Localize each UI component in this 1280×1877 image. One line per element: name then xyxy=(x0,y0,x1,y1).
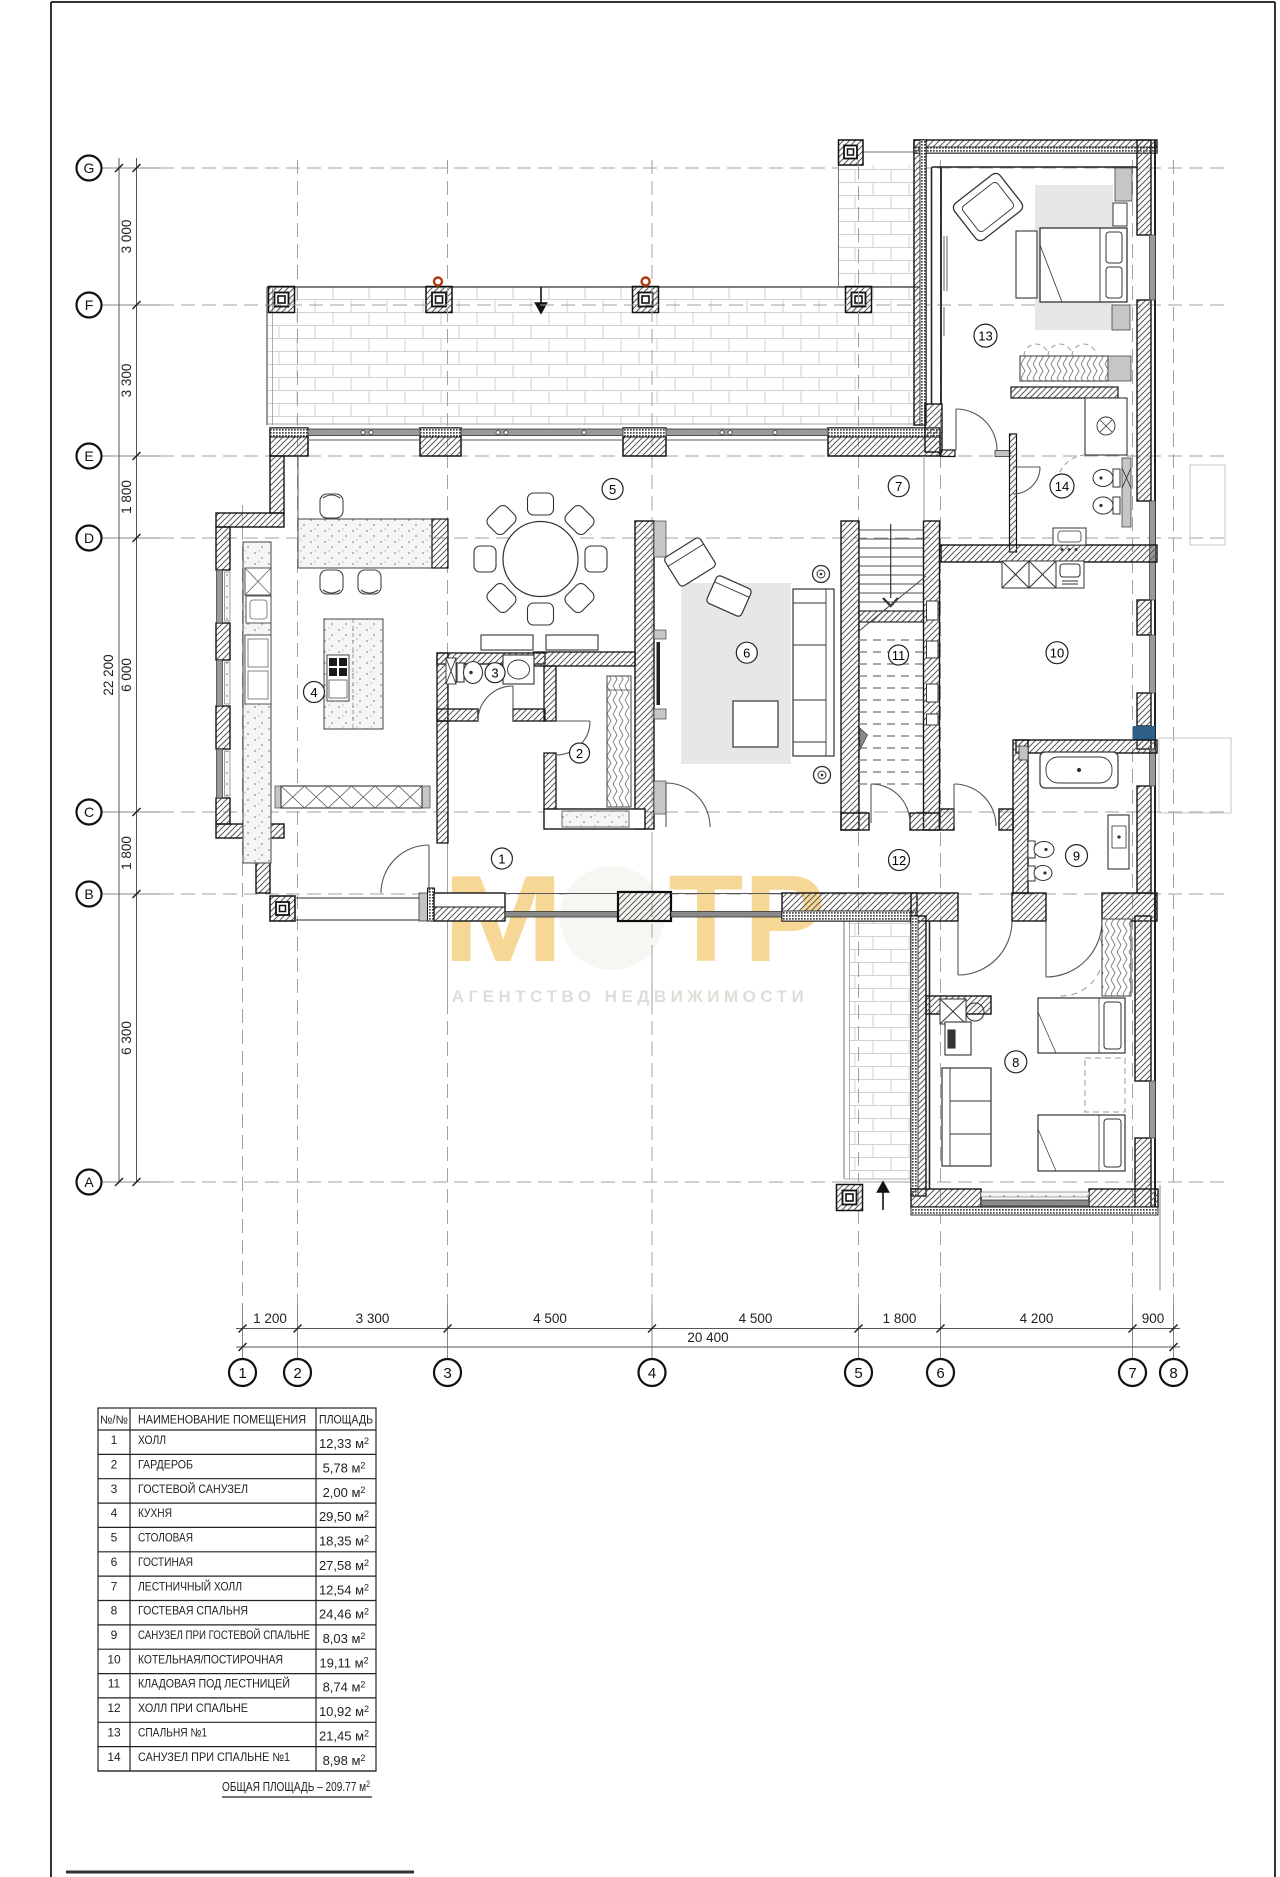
svg-text:4: 4 xyxy=(310,685,317,700)
svg-text:11: 11 xyxy=(108,1677,121,1691)
svg-text:E: E xyxy=(84,448,93,464)
svg-text:2: 2 xyxy=(576,746,583,761)
svg-text:29,50 м2: 29,50 м2 xyxy=(319,1509,369,1524)
svg-text:9: 9 xyxy=(1073,849,1080,864)
svg-text:8,74 м2: 8,74 м2 xyxy=(323,1680,366,1695)
svg-text:12: 12 xyxy=(892,853,906,868)
svg-text:КОТЕЛЬНАЯ/ПОСТИРОЧНАЯ: КОТЕЛЬНАЯ/ПОСТИРОЧНАЯ xyxy=(138,1652,283,1666)
svg-text:8,03 м2: 8,03 м2 xyxy=(323,1631,366,1646)
svg-text:3 000: 3 000 xyxy=(119,220,134,254)
svg-text:18,35 м2: 18,35 м2 xyxy=(319,1534,369,1549)
svg-text:7: 7 xyxy=(111,1579,118,1593)
svg-text:13: 13 xyxy=(107,1726,121,1740)
svg-text:№/№: №/№ xyxy=(100,1415,128,1427)
svg-text:D: D xyxy=(84,530,94,546)
svg-text:900: 900 xyxy=(1142,1311,1165,1326)
svg-text:F: F xyxy=(85,297,94,313)
svg-text:3 300: 3 300 xyxy=(119,364,134,398)
svg-text:ГАРДЕРОБ: ГАРДЕРОБ xyxy=(138,1458,193,1472)
svg-text:2: 2 xyxy=(293,1365,301,1382)
svg-text:B: B xyxy=(84,886,93,902)
svg-text:C: C xyxy=(84,804,94,820)
svg-text:5: 5 xyxy=(854,1365,862,1382)
svg-text:2: 2 xyxy=(111,1458,118,1472)
svg-text:2,00 м2: 2,00 м2 xyxy=(323,1485,366,1500)
svg-text:ЛЕСТНИЧНЫЙ ХОЛЛ: ЛЕСТНИЧНЫЙ ХОЛЛ xyxy=(138,1578,242,1593)
svg-text:8: 8 xyxy=(1169,1365,1177,1382)
svg-text:27,58 м2: 27,58 м2 xyxy=(319,1558,369,1573)
svg-text:8,98 м2: 8,98 м2 xyxy=(323,1753,366,1768)
svg-text:21,45 м2: 21,45 м2 xyxy=(319,1729,369,1744)
svg-text:5: 5 xyxy=(111,1531,118,1545)
svg-text:САНУЗЕЛ ПРИ СПАЛЬНЕ №1: САНУЗЕЛ ПРИ СПАЛЬНЕ №1 xyxy=(138,1750,290,1764)
svg-text:6: 6 xyxy=(743,646,750,661)
svg-text:4 500: 4 500 xyxy=(739,1311,773,1326)
svg-text:7: 7 xyxy=(895,479,902,494)
svg-text:1: 1 xyxy=(238,1365,246,1382)
svg-text:5: 5 xyxy=(609,482,616,497)
svg-text:13: 13 xyxy=(978,329,992,344)
svg-text:САНУЗЕЛ ПРИ ГОСТЕВОЙ СПАЛЬНЕ: САНУЗЕЛ ПРИ ГОСТЕВОЙ СПАЛЬНЕ xyxy=(138,1627,310,1642)
svg-text:1 200: 1 200 xyxy=(253,1311,287,1326)
svg-text:1 800: 1 800 xyxy=(119,836,134,870)
svg-text:ОБЩАЯ ПЛОЩАДЬ – 209.77 м2: ОБЩАЯ ПЛОЩАДЬ – 209.77 м2 xyxy=(222,1779,370,1794)
svg-text:ХОЛЛ ПРИ СПАЛЬНЕ: ХОЛЛ ПРИ СПАЛЬНЕ xyxy=(138,1701,248,1715)
svg-text:3: 3 xyxy=(491,666,498,681)
svg-text:22 200: 22 200 xyxy=(101,654,116,695)
svg-text:ХОЛЛ: ХОЛЛ xyxy=(138,1433,166,1447)
svg-text:6 000: 6 000 xyxy=(119,658,134,692)
svg-text:4: 4 xyxy=(648,1365,656,1382)
svg-text:24,46 м2: 24,46 м2 xyxy=(319,1607,369,1622)
svg-text:1 800: 1 800 xyxy=(119,480,134,514)
svg-text:6 300: 6 300 xyxy=(119,1021,134,1055)
svg-text:10: 10 xyxy=(1050,646,1064,661)
svg-text:СПАЛЬНЯ №1: СПАЛЬНЯ №1 xyxy=(138,1726,207,1740)
svg-text:12,33 м2: 12,33 м2 xyxy=(319,1436,369,1451)
svg-text:АГЕНТСТВО НЕДВИЖИМОСТИ: АГЕНТСТВО НЕДВИЖИМОСТИ xyxy=(452,987,809,1006)
svg-text:8: 8 xyxy=(1012,1055,1019,1070)
svg-text:1 800: 1 800 xyxy=(883,1311,917,1326)
svg-text:1: 1 xyxy=(498,852,505,867)
svg-text:5,78 м2: 5,78 м2 xyxy=(323,1461,366,1476)
svg-text:G: G xyxy=(84,160,95,176)
svg-text:КУХНЯ: КУХНЯ xyxy=(138,1506,172,1520)
svg-text:7: 7 xyxy=(1128,1365,1136,1382)
svg-text:20 400: 20 400 xyxy=(687,1330,728,1345)
svg-text:12: 12 xyxy=(107,1701,121,1715)
svg-text:4 200: 4 200 xyxy=(1020,1311,1054,1326)
svg-text:11: 11 xyxy=(892,648,906,663)
svg-text:12,54 м2: 12,54 м2 xyxy=(319,1582,369,1597)
svg-text:8: 8 xyxy=(111,1604,118,1618)
svg-text:14: 14 xyxy=(1055,479,1069,494)
svg-text:A: A xyxy=(84,1174,94,1190)
svg-text:КЛАДОВАЯ ПОД ЛЕСТНИЦЕЙ: КЛАДОВАЯ ПОД ЛЕСТНИЦЕЙ xyxy=(138,1676,290,1691)
svg-text:1: 1 xyxy=(111,1433,118,1447)
svg-text:6: 6 xyxy=(936,1365,944,1382)
svg-text:3 300: 3 300 xyxy=(356,1311,390,1326)
svg-text:3: 3 xyxy=(111,1482,118,1496)
svg-text:10: 10 xyxy=(107,1652,121,1666)
svg-text:НАИМЕНОВАНИЕ ПОМЕЩЕНИЯ: НАИМЕНОВАНИЕ ПОМЕЩЕНИЯ xyxy=(138,1415,306,1427)
svg-text:4: 4 xyxy=(111,1506,118,1520)
svg-text:ГОСТЕВОЙ САНУЗЕЛ: ГОСТЕВОЙ САНУЗЕЛ xyxy=(138,1481,248,1496)
svg-text:ГОСТЕВАЯ СПАЛЬНЯ: ГОСТЕВАЯ СПАЛЬНЯ xyxy=(138,1604,248,1618)
svg-text:19,11 м2: 19,11 м2 xyxy=(319,1655,368,1670)
svg-text:14: 14 xyxy=(107,1750,121,1764)
svg-text:9: 9 xyxy=(111,1628,118,1642)
svg-text:6: 6 xyxy=(111,1555,118,1569)
svg-text:3: 3 xyxy=(443,1365,451,1382)
svg-text:4 500: 4 500 xyxy=(533,1311,567,1326)
svg-text:СТОЛОВАЯ: СТОЛОВАЯ xyxy=(138,1531,193,1545)
svg-text:ПЛОЩАДЬ: ПЛОЩАДЬ xyxy=(319,1415,373,1427)
svg-text:ГОСТИНАЯ: ГОСТИНАЯ xyxy=(138,1555,193,1569)
svg-text:10,92 м2: 10,92 м2 xyxy=(319,1704,369,1719)
